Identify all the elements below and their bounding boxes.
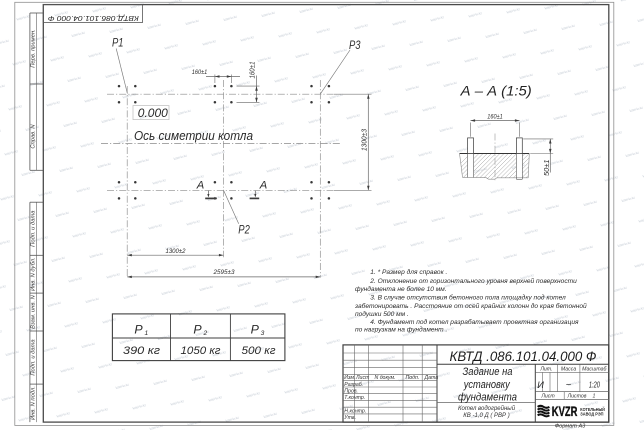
svg-text:Подп. и дата: Подп. и дата: [31, 210, 37, 247]
svg-text:3: 3: [261, 330, 265, 337]
svg-text:А: А: [196, 180, 204, 192]
svg-text:установку: установку: [463, 379, 511, 391]
svg-text:Формат А3: Формат А3: [555, 424, 586, 430]
svg-text:А – А (1:5): А – А (1:5): [460, 83, 532, 98]
svg-text:Изм.: Изм.: [344, 375, 355, 381]
svg-text:Лит.: Лит.: [539, 367, 552, 373]
svg-text:Масса: Масса: [561, 367, 576, 373]
svg-text:Задание на: Задание на: [463, 366, 513, 378]
svg-text:Взам. инв. N: Взам. инв. N: [31, 294, 37, 329]
svg-text:Р3: Р3: [349, 39, 361, 52]
svg-text:–: –: [565, 379, 571, 389]
svg-text:1:20: 1:20: [589, 381, 600, 390]
svg-text:А: А: [259, 180, 267, 192]
svg-text:1: 1: [144, 330, 148, 337]
svg-text:Перв. примен.: Перв. примен.: [31, 29, 37, 68]
svg-text:забетонировать . Расстояние от: забетонировать . Расстояние от осей край…: [354, 302, 587, 310]
svg-text:50±1: 50±1: [544, 159, 551, 176]
svg-text:Р1: Р1: [112, 36, 124, 49]
svg-text:500 кг: 500 кг: [242, 345, 276, 357]
svg-text:1: 1: [593, 393, 596, 399]
svg-text:2595±3: 2595±3: [213, 269, 235, 276]
svg-text:фундамента: фундамента: [458, 392, 517, 404]
svg-text:Н.контр.: Н.контр.: [344, 409, 366, 415]
svg-text:Дата: Дата: [424, 375, 439, 381]
svg-text:подушки 500 мм .: подушки 500 мм .: [355, 310, 409, 318]
svg-text:N докум.: N докум.: [375, 375, 396, 381]
svg-text:Инв. N дубл.: Инв. N дубл.: [31, 257, 37, 291]
svg-text:КВТД .086.101.04.000 Ф: КВТД .086.101.04.000 Ф: [450, 349, 597, 364]
svg-text:160±1: 160±1: [192, 69, 208, 76]
svg-text:И: И: [537, 380, 544, 390]
svg-text:Лист: Лист: [540, 393, 555, 399]
svg-text:1. * Размер для справок .: 1. * Размер для справок .: [370, 268, 447, 276]
svg-text:2: 2: [202, 330, 207, 337]
svg-text:1300±2: 1300±2: [166, 248, 186, 255]
svg-text:Утв.: Утв.: [344, 415, 356, 421]
svg-text:Р: Р: [193, 322, 202, 336]
svg-text:Р: Р: [134, 322, 143, 336]
svg-text:160±1: 160±1: [250, 61, 257, 78]
svg-text:Р2: Р2: [238, 224, 250, 237]
svg-text:2. Отклонение от горизонтально: 2. Отклонение от горизонтального уровня …: [369, 277, 577, 285]
svg-text:KVZR: KVZR: [552, 404, 578, 419]
svg-text:Масштаб: Масштаб: [582, 367, 607, 373]
svg-text:0.000: 0.000: [138, 106, 168, 120]
svg-text:4. Фундамент под котел разраба: 4. Фундамент под котел разрабатывает про…: [370, 318, 579, 326]
svg-text:Ось симетрии котла: Ось симетрии котла: [134, 128, 253, 143]
svg-text:1300±3: 1300±3: [362, 129, 369, 151]
svg-text:Т.контр.: Т.контр.: [344, 395, 365, 401]
svg-text:390 кг: 390 кг: [123, 345, 160, 357]
svg-text:1050 кг: 1050 кг: [181, 345, 221, 357]
svg-text:Справ. N: Справ. N: [31, 124, 37, 149]
svg-text:Котел водогрейный: Котел водогрейный: [458, 405, 516, 412]
svg-text:КВ -1,0 Д ( РВР ): КВ -1,0 Д ( РВР ): [463, 413, 509, 419]
svg-text:Разраб.: Разраб.: [344, 382, 363, 388]
svg-text:Подп. и дата: Подп. и дата: [31, 339, 37, 376]
svg-text:КВТД.086.101.04.000 Ф: КВТД.086.101.04.000 Ф: [48, 14, 139, 23]
svg-text:Лист: Лист: [355, 375, 370, 381]
svg-text:160±1: 160±1: [487, 113, 503, 120]
svg-text:Листов: Листов: [567, 393, 587, 399]
svg-text:Подп.: Подп.: [406, 375, 420, 381]
svg-text:3. В случае отсутствия бетонно: 3. В случае отсутствия бетонного пола пл…: [370, 294, 566, 302]
svg-text:по нагрузкам на фундамент .: по нагрузкам на фундамент .: [355, 326, 447, 334]
svg-text:ЗАВОД РЭП: ЗАВОД РЭП: [580, 412, 603, 417]
svg-text:Инв. N подл.: Инв. N подл.: [31, 386, 37, 420]
svg-text:Р: Р: [251, 322, 260, 336]
svg-text:Пров.: Пров.: [344, 388, 358, 394]
svg-text:фундамента не более 10 мм.: фундамента не более 10 мм.: [355, 285, 447, 293]
